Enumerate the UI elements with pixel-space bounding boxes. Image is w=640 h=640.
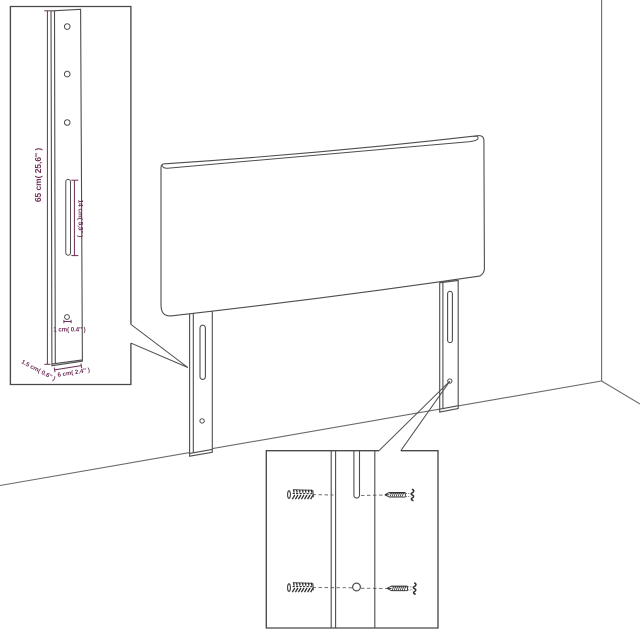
svg-text:1 cm( 0.4'' ): 1 cm( 0.4'' ) [53,328,85,334]
svg-text:65 cm( 25,6'' ): 65 cm( 25,6'' ) [33,148,43,202]
svg-text:14 cm( 5,5'' ): 14 cm( 5,5'' ) [77,200,84,238]
